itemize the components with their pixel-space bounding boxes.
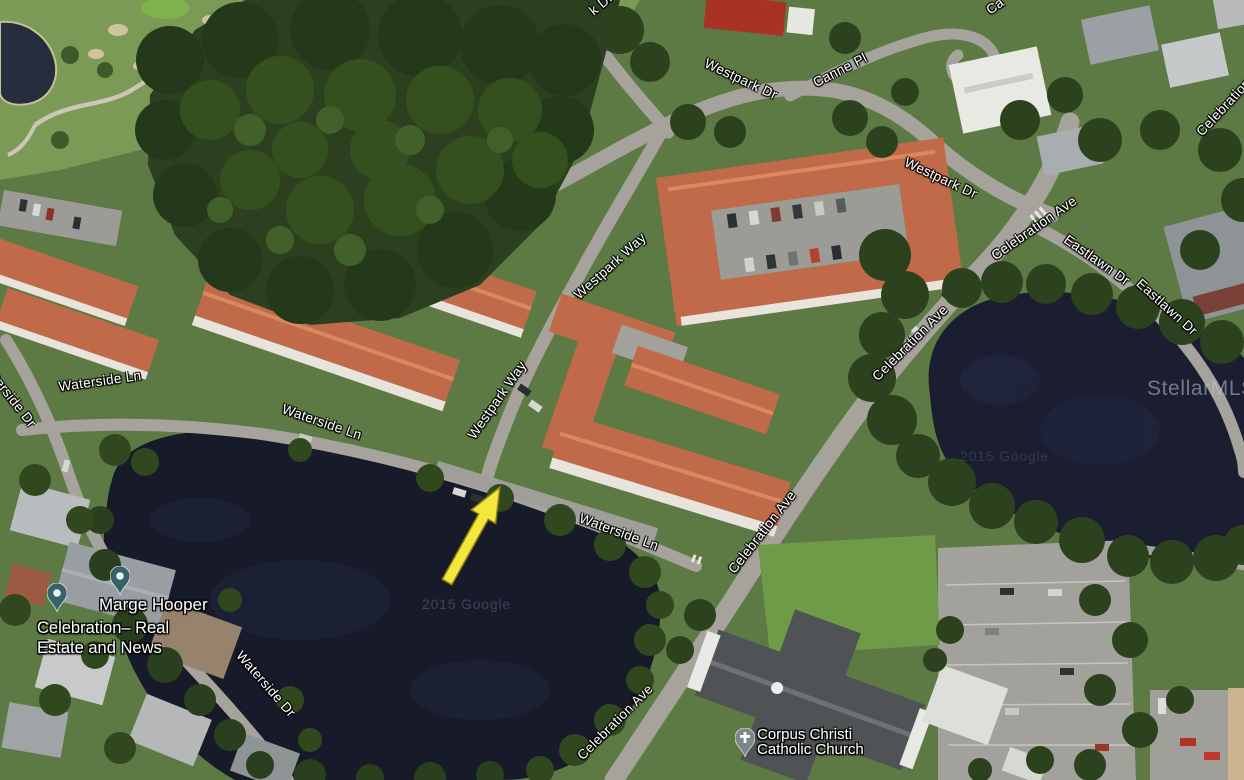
mls-watermark: StellarMLS [1147,377,1244,401]
aerial-map-view[interactable]: k Dr Westpark Dr Canne Pl Westpark Dr Ce… [0,0,1244,780]
poi-church-line2: Catholic Church [757,743,864,758]
poi-business-name[interactable]: Marge Hooper [99,595,208,615]
imagery-watermark: 2015 Google [422,596,511,612]
imagery-watermark: 2015 Google [960,448,1049,464]
poi-business-desc-line1: Celebration– Real [37,618,169,638]
satellite-imagery [0,0,1244,780]
poi-church-label[interactable]: Corpus Christi Catholic Church [757,728,864,757]
poi-business-desc-line2: Estate and News [37,638,169,658]
poi-business-desc[interactable]: Celebration– Real Estate and News [37,618,169,658]
church-pin-icon[interactable] [735,728,755,757]
map-pin-icon[interactable] [47,583,67,612]
map-pin-icon[interactable] [110,566,130,595]
parking-lot [938,540,1244,780]
